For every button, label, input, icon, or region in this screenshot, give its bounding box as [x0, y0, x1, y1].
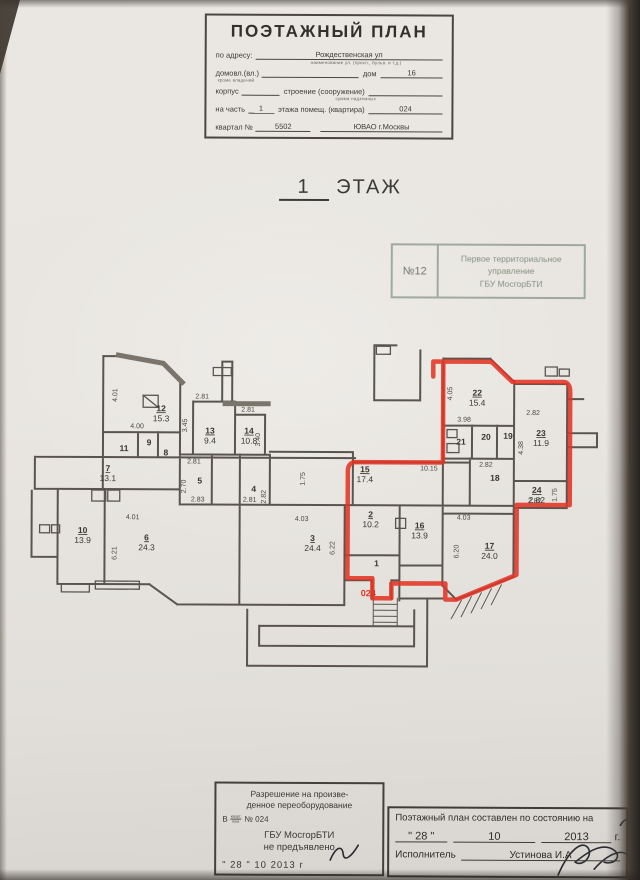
room-number-label: 14 [244, 426, 254, 436]
photo-edge-right [606, 0, 640, 880]
room-number-label: 5 [197, 475, 202, 485]
dimension-label: 2.81 [241, 407, 255, 414]
kvart-pom-stack: кварт. пом. [231, 815, 242, 824]
executor-row: Исполнитель Устинова И.А [395, 849, 620, 861]
dimension-label: 3.98 [457, 417, 471, 424]
room-number-label: 1 [374, 558, 379, 568]
dimension-label: 2.81 [187, 458, 201, 465]
page-content: ПОЭТАЖНЫЙ ПЛАН по адресу: Рождественская… [0, 0, 640, 880]
room-number-label: 24 [532, 485, 542, 495]
room-area-label: 17.4 [357, 474, 374, 484]
room-number-label: 13 [205, 425, 215, 435]
dimension-label: 4.03 [457, 515, 471, 522]
room-number-label: 23 [536, 428, 546, 438]
org-status: не предъявлено [222, 842, 376, 855]
dimension-label: 2.82 [479, 462, 493, 469]
photo-edge-top [0, 0, 640, 8]
room-area-label: 24.3 [138, 542, 155, 552]
room-area-label: 9.4 [204, 435, 216, 445]
plan-date-row: " 28 " 10 2013 г. [395, 830, 620, 843]
photo-edge-bottom [0, 869, 640, 880]
dimension-label: 4.01 [126, 514, 140, 521]
permission-line1: Разрешение на произве- [222, 789, 376, 800]
room-area-label: 13.1 [100, 473, 117, 483]
room-number-label: 6 [144, 532, 149, 542]
room-area-label: 13.9 [74, 535, 91, 545]
room-area-label: 11.9 [533, 438, 549, 448]
dimension-label: 4.38 [518, 441, 525, 455]
permission-line2: денное переоборудование [222, 799, 376, 810]
room-number-label: 11 [119, 443, 128, 453]
dimension-label: 10.15 [420, 465, 438, 472]
dimension-label: 4.05 [447, 387, 454, 401]
dimension-label: 2.83 [191, 496, 205, 503]
apartment-number-label: 024 [361, 588, 376, 598]
room-number-label: 22 [472, 388, 482, 398]
scanned-floor-plan-photo: ПОЭТАЖНЫЙ ПЛАН по адресу: Рождественская… [0, 0, 640, 880]
parapet-bands [118, 355, 268, 404]
executor-name: Устинова И.А [461, 851, 620, 862]
dimension-label: 2.70 [181, 479, 188, 493]
org-name: ГБУ МосгорБТИ [222, 830, 376, 843]
room-number-label: 20 [481, 432, 491, 442]
in-label: В [222, 815, 227, 824]
dimension-label: 6.20 [453, 545, 460, 559]
date-day: " 28 " [395, 832, 447, 842]
photo-edge-left [0, 0, 7, 880]
room-number-label: 17 [485, 541, 495, 551]
permission-box: Разрешение на произве- денное переоборуд… [214, 782, 384, 877]
room-number-label: 19 [503, 431, 513, 441]
dimension-label: 2.82 [528, 498, 542, 505]
dimension-label: 2.81 [195, 393, 209, 400]
executor-label: Исполнитель [395, 849, 456, 860]
room-area-label: 13.9 [411, 530, 428, 540]
room-area-label: 15.3 [153, 413, 170, 423]
dimension-label: 4.01 [112, 388, 119, 402]
room-labels: 1215.3139.41410.8713.15411981013.9624.33… [74, 386, 549, 569]
dimension-label: 6.21 [111, 546, 118, 560]
dimension-label: 4.00 [130, 423, 144, 430]
room-number-label: 21 [456, 437, 466, 447]
room-number-label: 4 [251, 484, 256, 494]
room-area-label: 10.2 [362, 519, 379, 529]
dimension-label: 1.75 [552, 488, 559, 502]
plan-date-title: Поэтажный план составлен по состоянию на [395, 812, 620, 824]
dimension-label: 2.82 [526, 410, 540, 417]
dimension-label: 6.22 [329, 541, 336, 555]
permission-number: № 024 [244, 815, 268, 824]
room-number-label: 8 [164, 447, 169, 457]
room-number-label: 9 [147, 437, 152, 447]
date-year: 2013 [542, 833, 612, 843]
room-number-label: 18 [490, 473, 500, 483]
room-number-label: 3 [310, 533, 315, 543]
room-area-label: 15.4 [469, 398, 486, 408]
date-month: 10 [453, 833, 535, 843]
dimension-label: 1.75 [300, 472, 307, 486]
dimension-label: 2.81 [243, 497, 257, 504]
room-area-label: 24.0 [481, 551, 498, 561]
plan-date-box: Поэтажный план составлен по состоянию на… [387, 806, 628, 878]
room-number-label: 10 [78, 525, 88, 535]
room-number-label: 15 [360, 464, 370, 474]
room-number-label: 12 [156, 403, 166, 413]
room-area-label: 24.4 [304, 543, 321, 553]
dimension-label: 3.40 [255, 433, 262, 447]
floor-plan-drawing: 024 1215.3139.41410.8713.15411981013.962… [0, 0, 640, 880]
dimension-label: 2.82 [261, 490, 268, 504]
dimension-label: 4.03 [295, 516, 309, 523]
room-number-label: 7 [105, 463, 110, 473]
room-number-label: 16 [415, 520, 425, 530]
dimension-label: 3.45 [182, 418, 189, 432]
room-number-label: 2 [368, 509, 373, 519]
permission-number-row: В кварт. пом. № 024 [222, 815, 376, 825]
